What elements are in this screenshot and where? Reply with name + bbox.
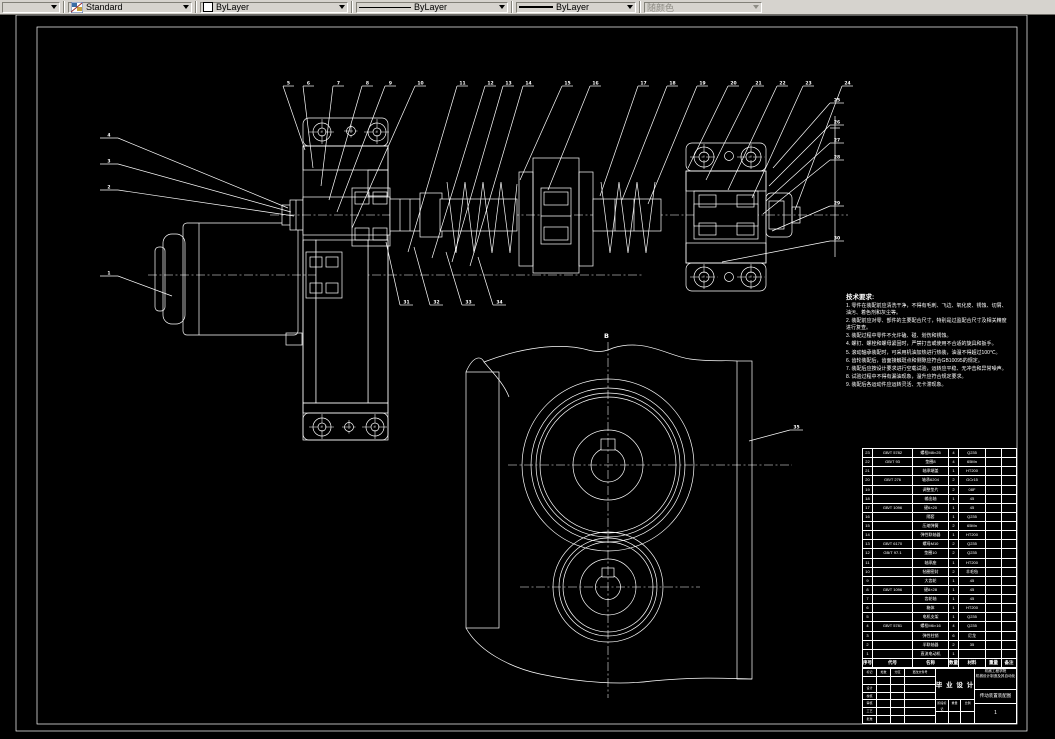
parts-cell — [986, 559, 1002, 567]
parts-row: 5电机支架1Q235 — [863, 612, 1016, 621]
toolbar-separator — [511, 1, 513, 13]
parts-cell: Q235 — [959, 622, 986, 630]
title-block-cell — [877, 685, 891, 692]
title-block-cell — [905, 700, 935, 707]
parts-row: 10毡圈密封2羊毛毡 — [863, 567, 1016, 576]
parts-row: 13GB/T 6170螺母M102Q235 — [863, 539, 1016, 548]
view-b-label: B — [604, 332, 609, 340]
title-block-cell — [891, 716, 905, 723]
parts-cell: 19 — [863, 486, 873, 494]
parts-cell: 代号 — [873, 659, 913, 667]
parts-cell: 调整垫片 — [913, 486, 949, 494]
color-swatch — [203, 2, 213, 12]
parts-cell — [1002, 613, 1016, 621]
parts-cell: 螺栓M8×25 — [913, 449, 949, 457]
parts-cell — [986, 604, 1002, 612]
parts-cell: 45 — [959, 595, 986, 603]
title-block-cell: 校核 — [863, 693, 877, 700]
parts-cell — [986, 632, 1002, 640]
parts-cell: 轴承座 — [913, 559, 949, 567]
parts-cell: 名称 — [913, 659, 949, 667]
tech-req-item: 5. 滚动轴承装配时，可采用机油加热进行热装，油温不得超过100℃。 — [846, 350, 1010, 357]
tech-req-item: 7. 装配后应按设计要求进行空载试验，运转应平稳、无冲击和异常噪声。 — [846, 366, 1010, 373]
parts-cell — [1002, 577, 1016, 585]
parts-cell: 弹性联轴器 — [913, 531, 949, 539]
parts-cell: Q235 — [959, 513, 986, 521]
parts-cell: 6 — [949, 632, 959, 640]
parts-cell — [986, 613, 1002, 621]
parts-cell — [873, 604, 913, 612]
tech-req-item: 9. 装配后各运动件应运转灵活、无卡滞现象。 — [846, 382, 1010, 389]
title-block-cell — [891, 693, 905, 700]
tech-req-item: 1. 零件在装配前应清洗干净，不得有毛刺、飞边、氧化皮、锈蚀、切屑、油污、着色剂… — [846, 303, 1010, 317]
parts-cell: 1 — [949, 604, 959, 612]
parts-cell — [1002, 495, 1016, 503]
chevron-down-icon — [51, 5, 57, 9]
parts-cell — [986, 549, 1002, 557]
parts-cell — [1002, 595, 1016, 603]
parts-cell: HT200 — [959, 531, 986, 539]
parts-cell — [1002, 622, 1016, 630]
parts-header-row: 序号代号名称数量材料重量备注 — [863, 658, 1016, 667]
balloon-number: 16 — [592, 81, 598, 87]
parts-cell: 65Mn — [959, 522, 986, 530]
chevron-down-icon — [183, 5, 189, 9]
parts-cell: HT200 — [959, 604, 986, 612]
chevron-down-icon — [339, 5, 345, 9]
balloon-number: 23 — [805, 81, 811, 87]
parts-cell: 1 — [949, 531, 959, 539]
title-block: 标记处数分区更改文件号设计校核审核工艺批准 毕 业 设 计 阶段标记重量比例 机… — [862, 668, 1017, 724]
parts-row: 21轴承端盖1HT200 — [863, 466, 1016, 475]
parts-cell: 1 — [949, 586, 959, 594]
parts-row: 23GB/T 5782螺栓M8×254Q235 — [863, 449, 1016, 457]
parts-cell — [1002, 467, 1016, 475]
title-block-cell — [863, 677, 877, 684]
parts-cell: 尼龙 — [959, 632, 986, 640]
parts-cell: 重量 — [986, 659, 1002, 667]
title-block-row: 校核 — [863, 692, 935, 700]
title-block-cell: 标记 — [863, 669, 877, 676]
parts-cell: 1 — [949, 495, 959, 503]
parts-row: 16隔套1Q235 — [863, 512, 1016, 521]
part-balloon: 18 — [622, 81, 678, 201]
parts-row: 17GB/T 1096键6×20145 — [863, 503, 1016, 512]
parts-cell — [986, 467, 1002, 475]
parts-cell — [1002, 540, 1016, 548]
part-balloon: 17 — [600, 81, 649, 197]
part-balloon: 33 — [446, 252, 475, 306]
parts-cell: 1 — [949, 613, 959, 621]
part-balloon: 32 — [414, 247, 443, 306]
parts-cell — [986, 650, 1002, 658]
parts-cell: Q235 — [959, 549, 986, 557]
parts-cell: 螺母M10 — [913, 540, 949, 548]
part-balloon: 19 — [648, 81, 708, 205]
parts-cell — [986, 476, 1002, 484]
balloon-number: 13 — [505, 81, 511, 87]
toolbar-separator — [639, 1, 641, 13]
parts-cell: 2 — [949, 540, 959, 548]
title-block-cell — [936, 712, 949, 723]
parts-cell — [1002, 449, 1016, 457]
balloon-number: 9 — [389, 81, 392, 87]
parts-cell — [1002, 476, 1016, 484]
parts-cell — [1002, 522, 1016, 530]
title-block-cell — [905, 708, 935, 715]
balloon-number: 33 — [465, 300, 471, 306]
parts-cell: 输出轴 — [913, 495, 949, 503]
parts-cell: 4 — [949, 458, 959, 466]
parts-cell: 65Mn — [959, 458, 986, 466]
parts-cell — [1002, 504, 1016, 512]
parts-cell — [873, 650, 913, 658]
tech-req-item: 6. 齿轮装配后，齿面接触斑点和侧隙应符合GB10095的规定。 — [846, 358, 1010, 365]
parts-cell: 弹性柱销 — [913, 632, 949, 640]
parts-cell — [986, 513, 1002, 521]
parts-cell: GB/T 97.1 — [873, 549, 913, 557]
parts-cell: 毡圈密封 — [913, 568, 949, 576]
parts-cell — [959, 650, 986, 658]
parts-cell: GB/T 5781 — [873, 622, 913, 630]
parts-cell: 8 — [863, 586, 873, 594]
title-block-cell: 重量 — [949, 700, 962, 711]
title-block-scale-cells: 阶段标记重量比例 — [936, 699, 974, 723]
balloon-number: 20 — [730, 81, 736, 87]
parts-cell: 电机支架 — [913, 613, 949, 621]
part-balloon: 31 — [386, 242, 413, 306]
parts-cell — [1002, 586, 1016, 594]
parts-cell — [1002, 531, 1016, 539]
parts-cell — [873, 641, 913, 649]
title-block-cell — [905, 677, 935, 684]
linetype-combo[interactable]: ByLayer — [356, 2, 508, 13]
text-style-value: Standard — [86, 2, 123, 12]
toolbar-separator — [63, 1, 65, 13]
part-balloon: 35 — [749, 425, 803, 442]
part-balloon: 5 — [283, 81, 305, 151]
title-block-cell — [961, 712, 974, 723]
parts-cell: 14 — [863, 531, 873, 539]
title-block-cell — [949, 712, 962, 723]
title-block-cell: 批准 — [863, 716, 877, 723]
plotstyle-value: 随颜色 — [647, 1, 674, 14]
parts-row: 15压缩弹簧265Mn — [863, 521, 1016, 530]
parts-cell — [873, 559, 913, 567]
balloon-number: 31 — [403, 300, 409, 306]
parts-cell — [986, 486, 1002, 494]
balloon-layer: 4321567891011121314151617181920212223242… — [100, 81, 853, 442]
title-block-cell: 更改文件号 — [905, 669, 935, 676]
parts-cell: 15 — [863, 522, 873, 530]
part-balloon: 2 — [100, 185, 294, 217]
parts-cell: 2 — [949, 641, 959, 649]
parts-cell: 13 — [863, 540, 873, 548]
part-balloon: 8 — [329, 81, 373, 201]
linetype-value: ByLayer — [414, 2, 447, 12]
parts-cell — [1002, 559, 1016, 567]
parts-cell — [1002, 568, 1016, 576]
technical-requirements: 技术要求: 1. 零件在装配前应清洗干净，不得有毛刺、飞边、氧化皮、锈蚀、切屑、… — [846, 291, 1010, 390]
parts-cell — [873, 613, 913, 621]
drawing-title: 传动装置装配图 — [975, 690, 1016, 704]
parts-cell: 45 — [959, 495, 986, 503]
balloon-number: 32 — [433, 300, 439, 306]
parts-cell: 12 — [863, 549, 873, 557]
drawing-number: 1 — [975, 704, 1016, 724]
title-block-cell — [877, 693, 891, 700]
parts-cell: 1 — [949, 559, 959, 567]
balloon-number: 29 — [834, 201, 840, 207]
parts-cell: 16 — [863, 513, 873, 521]
balloon-number: 11 — [459, 81, 465, 87]
part-balloon: 34 — [478, 257, 506, 306]
balloon-number: 6 — [307, 81, 310, 87]
gear-section-view: B — [466, 332, 792, 698]
title-block-row: 批准 — [863, 715, 935, 723]
title-block-cell — [891, 700, 905, 707]
title-block-cell — [905, 685, 935, 692]
chevron-down-icon — [627, 5, 633, 9]
parts-cell — [873, 495, 913, 503]
parts-cell: 齿轮轴 — [913, 595, 949, 603]
parts-cell: 大齿轮 — [913, 577, 949, 585]
parts-cell — [1002, 486, 1016, 494]
chevron-down-icon — [499, 5, 505, 9]
balloon-number: 28 — [834, 155, 840, 161]
parts-cell: GB/T 1096 — [873, 504, 913, 512]
parts-cell — [986, 504, 1002, 512]
part-balloon: 4 — [100, 133, 288, 209]
parts-cell — [986, 458, 1002, 466]
parts-cell — [986, 531, 1002, 539]
parts-cell: 半联轴器 — [913, 641, 949, 649]
parts-cell — [873, 568, 913, 576]
balloon-number: 27 — [834, 138, 840, 144]
parts-cell: 10 — [863, 568, 873, 576]
main-assembly-view — [148, 116, 848, 440]
parts-cell: GCr15 — [959, 476, 986, 484]
parts-cell — [986, 522, 1002, 530]
toolbar-separator — [195, 1, 197, 13]
parts-cell: 直流电动机 — [913, 650, 949, 658]
tech-req-item: 8. 试验过程中不得有漏油现象，温升应符合规定要求。 — [846, 374, 1010, 381]
parts-cell: GB/T 276 — [873, 476, 913, 484]
title-block-cell: 分区 — [891, 669, 905, 676]
parts-row: 20GB/T 276轴承62042GCr15 — [863, 475, 1016, 484]
part-balloon: 6 — [303, 81, 314, 169]
balloon-number: 18 — [669, 81, 675, 87]
org-line2: 机械设计制造及其自动化 — [975, 674, 1016, 679]
parts-cell — [873, 522, 913, 530]
parts-cell: 1 — [949, 595, 959, 603]
parts-cell — [1002, 632, 1016, 640]
parts-cell: 1 — [949, 577, 959, 585]
parts-cell: 21 — [863, 467, 873, 475]
parts-cell: 2 — [863, 641, 873, 649]
parts-cell: 备注 — [1002, 659, 1016, 667]
balloon-number: 2 — [107, 185, 110, 191]
title-block-cell — [877, 716, 891, 723]
parts-cell: 1 — [863, 650, 873, 658]
parts-cell — [873, 513, 913, 521]
title-block-cell — [877, 677, 891, 684]
parts-row: 7齿轮轴145 — [863, 594, 1016, 603]
parts-cell: 4 — [863, 622, 873, 630]
parts-cell: 1 — [949, 504, 959, 512]
parts-cell: HT200 — [959, 559, 986, 567]
title-block-cell — [905, 693, 935, 700]
chevron-down-icon — [753, 5, 759, 9]
parts-cell: 11 — [863, 559, 873, 567]
parts-cell: 23 — [863, 449, 873, 457]
title-block-cell: 处数 — [877, 669, 891, 676]
parts-cell: 4 — [949, 449, 959, 457]
balloon-number: 30 — [834, 236, 840, 242]
parts-cell — [873, 577, 913, 585]
parts-cell: 垫圈8 — [913, 458, 949, 466]
part-balloon: 27 — [766, 138, 844, 202]
title-block-row — [936, 711, 974, 723]
parts-cell: 45 — [959, 586, 986, 594]
parts-cell: 18 — [863, 495, 873, 503]
part-balloon: 21 — [706, 81, 764, 181]
balloon-number: 10 — [417, 81, 423, 87]
toolbar-separator — [351, 1, 353, 13]
parts-cell: 20 — [863, 476, 873, 484]
parts-cell: 1 — [949, 650, 959, 658]
parts-cell — [986, 622, 1002, 630]
parts-row: 11轴承座1HT200 — [863, 558, 1016, 567]
parts-cell: 9 — [863, 577, 873, 585]
organization-name: 机械工程学院 机械设计制造及其自动化 — [975, 669, 1016, 690]
parts-cell: 22 — [863, 458, 873, 466]
title-block-row: 标记处数分区更改文件号 — [863, 669, 935, 676]
balloon-number: 1 — [107, 271, 110, 277]
parts-cell: 2 — [949, 549, 959, 557]
balloon-number: 4 — [107, 133, 110, 139]
title-block-cell — [891, 685, 905, 692]
title-block-row: 审核 — [863, 699, 935, 707]
parts-cell — [873, 531, 913, 539]
parts-cell: 2 — [949, 486, 959, 494]
title-block-cell — [877, 708, 891, 715]
parts-row: 12GB/T 97.1垫圈102Q235 — [863, 548, 1016, 557]
balloon-number: 26 — [834, 120, 840, 126]
tech-req-item: 3. 装配过程中零件不允许磕、碰、划伤和锈蚀。 — [846, 333, 1010, 340]
toolbar: Standard ByLayer ByLayer ByLayer 随颜色 — [0, 0, 1055, 15]
parts-cell: 序号 — [863, 659, 873, 667]
parts-cell — [1002, 549, 1016, 557]
parts-cell: 3 — [863, 632, 873, 640]
title-block-row: 工艺 — [863, 707, 935, 715]
balloon-number: 7 — [337, 81, 340, 87]
part-balloon: 24 — [795, 81, 853, 211]
balloon-number: 8 — [366, 81, 369, 87]
title-block-cell — [891, 677, 905, 684]
project-label: 毕 业 设 计 — [936, 669, 974, 699]
parts-cell: 1 — [949, 513, 959, 521]
title-block-cell: 工艺 — [863, 708, 877, 715]
part-balloon: 14 — [470, 81, 534, 267]
parts-cell — [1002, 604, 1016, 612]
parts-cell — [873, 632, 913, 640]
parts-cell: 5 — [863, 613, 873, 621]
parts-cell: 材料 — [959, 659, 986, 667]
part-balloon: 30 — [722, 236, 844, 263]
left-partial-combo[interactable] — [2, 2, 60, 13]
parts-cell — [873, 486, 913, 494]
parts-cell: 压缩弹簧 — [913, 522, 949, 530]
parts-cell: 17 — [863, 504, 873, 512]
parts-cell — [986, 586, 1002, 594]
plotstyle-combo: 随颜色 — [644, 2, 762, 13]
parts-cell: 数量 — [949, 659, 959, 667]
title-block-row: 设计 — [863, 684, 935, 692]
parts-cell — [1002, 650, 1016, 658]
parts-row: 9大齿轮145 — [863, 576, 1016, 585]
title-block-cell — [877, 700, 891, 707]
part-balloon: 1 — [100, 271, 172, 297]
parts-cell — [873, 467, 913, 475]
parts-cell: 45 — [959, 577, 986, 585]
parts-cell — [986, 495, 1002, 503]
parts-cell: 2 — [949, 522, 959, 530]
title-block-cell: 设计 — [863, 685, 877, 692]
balloon-number: 24 — [844, 81, 850, 87]
parts-cell: 2 — [949, 476, 959, 484]
title-block-row — [863, 676, 935, 684]
parts-cell: GB/T 6170 — [873, 540, 913, 548]
balloon-number: 17 — [640, 81, 646, 87]
title-block-cell: 阶段标记 — [936, 700, 949, 711]
lineweight-combo[interactable]: ByLayer — [516, 2, 636, 13]
text-style-combo[interactable]: Standard — [68, 2, 192, 13]
parts-cell: HT200 — [959, 467, 986, 475]
parts-cell: 箱体 — [913, 604, 949, 612]
balloon-number: 14 — [525, 81, 531, 87]
parts-cell: 1 — [949, 467, 959, 475]
parts-cell: 6 — [863, 604, 873, 612]
parts-cell: GB/T 93 — [873, 458, 913, 466]
part-balloon: 29 — [772, 201, 844, 232]
color-value: ByLayer — [216, 2, 249, 12]
parts-row: 4GB/T 5781螺栓M6×164Q235 — [863, 621, 1016, 630]
parts-cell — [986, 595, 1002, 603]
color-combo[interactable]: ByLayer — [200, 2, 348, 13]
parts-cell: 35 — [959, 641, 986, 649]
parts-cell: 键8×28 — [913, 586, 949, 594]
tech-req-items: 1. 零件在装配前应清洗干净，不得有毛刺、飞边、氧化皮、锈蚀、切屑、油污、着色剂… — [846, 303, 1010, 389]
part-balloon: 28 — [763, 155, 844, 215]
parts-cell: Q235 — [959, 540, 986, 548]
parts-row: 14弹性联轴器1HT200 — [863, 530, 1016, 539]
balloon-number: 3 — [107, 159, 110, 165]
layers-icon — [71, 2, 83, 13]
lineweight-value: ByLayer — [556, 2, 589, 12]
title-block-middle: 毕 业 设 计 阶段标记重量比例 — [936, 669, 975, 723]
balloon-number: 22 — [779, 81, 785, 87]
parts-row: 18输出轴145 — [863, 494, 1016, 503]
tech-req-item: 2. 装配前应对零、部件的主要配合尺寸，特别是过盈配合尺寸及相关精度进行复查。 — [846, 318, 1010, 332]
parts-row: 2半联轴器235 — [863, 640, 1016, 649]
parts-cell — [986, 568, 1002, 576]
parts-row: 8GB/T 1096键8×28145 — [863, 585, 1016, 594]
parts-cell — [873, 595, 913, 603]
balloon-number: 5 — [287, 81, 290, 87]
parts-cell — [1002, 641, 1016, 649]
balloon-number: 21 — [755, 81, 761, 87]
